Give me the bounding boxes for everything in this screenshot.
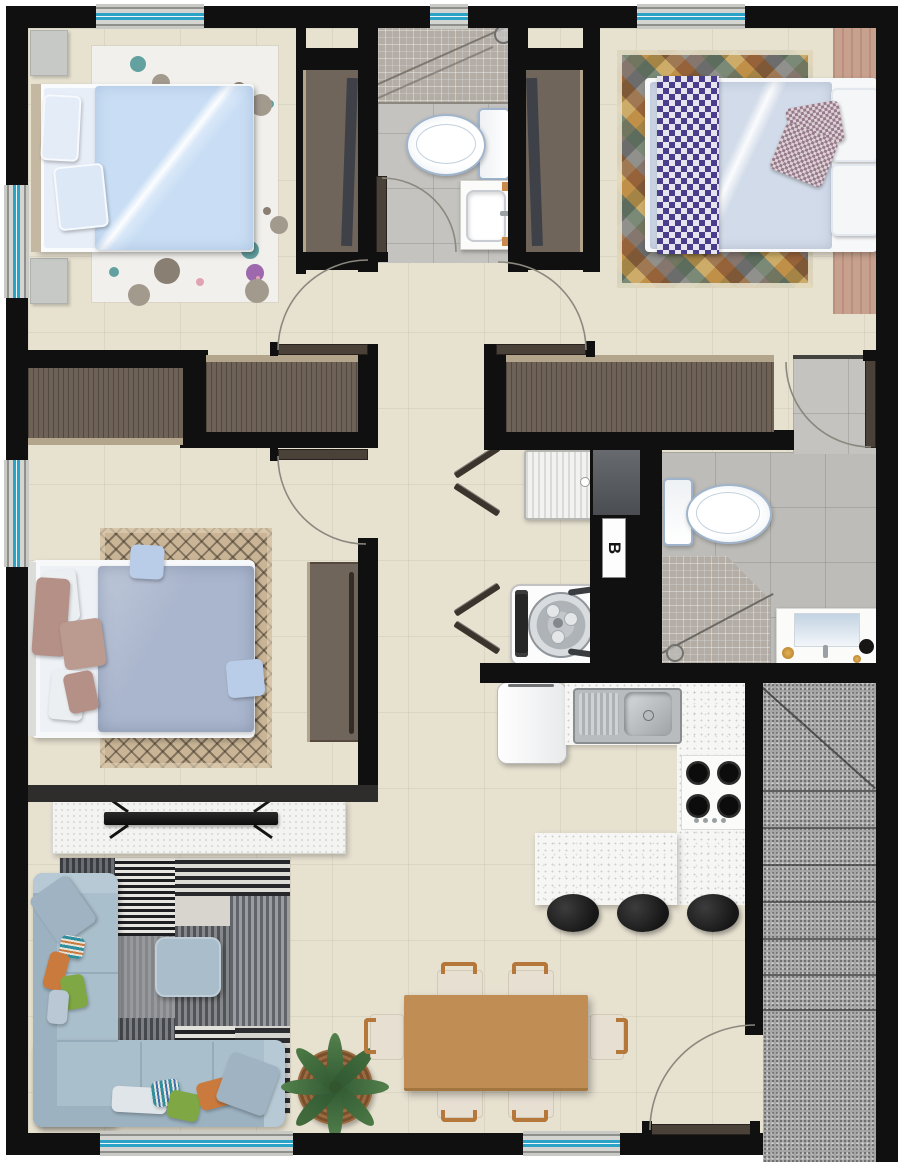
utility-shaft-tag: B <box>602 518 626 578</box>
window-bottom-living <box>100 1131 293 1156</box>
door-leaf-bedroom2 <box>278 449 368 460</box>
bedroom1-nightstand-bottom <box>30 258 68 304</box>
vanity-black-accent <box>859 639 874 654</box>
wall-top <box>468 6 637 28</box>
stove-knob <box>703 818 708 823</box>
bedroom3-bed-runner <box>657 76 719 254</box>
closet-bedroom3 <box>506 362 774 432</box>
stair-step <box>763 1009 876 1011</box>
washer-control-panel <box>515 590 528 657</box>
closet-bedroom1 <box>206 362 358 432</box>
closet-bedroom1-face <box>206 355 358 362</box>
bedroom2-wardrobe-handle <box>349 572 354 734</box>
stove-knob <box>712 818 717 823</box>
window-left-bedroom1 <box>4 185 29 298</box>
bedroom1-bed-headboard <box>31 84 41 252</box>
dining-chair-back <box>364 1018 376 1054</box>
door-hinge <box>270 342 278 356</box>
sofa-pillow-blue <box>47 989 70 1025</box>
window-top-bedroom1 <box>96 4 204 29</box>
rug-stripe-block <box>115 858 175 936</box>
door-hinge <box>642 1121 652 1137</box>
window-top-bathroom1 <box>430 4 468 29</box>
bedroom1-nightstand-top <box>30 30 68 76</box>
wardrobe-frame <box>303 48 358 72</box>
dining-chair-back <box>616 1018 628 1054</box>
rug-splatter <box>130 56 146 72</box>
window-top-bedroom3 <box>637 4 745 29</box>
door-leaf-bedroom1 <box>278 344 368 355</box>
bathroom2-vanity-faucet <box>823 645 828 658</box>
door-hinge <box>375 252 388 262</box>
stair-step <box>763 790 876 792</box>
dining-chair-back <box>441 962 477 974</box>
wardrobe-frame <box>526 250 583 270</box>
window-left-bedroom2 <box>4 460 29 567</box>
bedroom1-duvet <box>95 86 253 250</box>
door-leaf-entry <box>648 1124 756 1135</box>
wall-bottom <box>293 1133 523 1155</box>
wall-post-hall-left <box>358 344 378 448</box>
dining-chair-back <box>512 1110 548 1122</box>
bedroom2-throw-cushion <box>225 658 265 698</box>
bar-stool <box>617 894 669 932</box>
door-leaf-bedroom3 <box>496 344 586 355</box>
apartment-floor-plan: B <box>0 0 900 1162</box>
bedroom1-pillow <box>40 94 81 162</box>
stair-step <box>763 827 876 829</box>
bedroom1-pillow <box>53 163 109 232</box>
stair-step <box>763 864 876 866</box>
fridge-handle <box>508 684 554 687</box>
washer-paddle <box>551 630 565 644</box>
wall-left <box>6 298 28 460</box>
stair-step <box>763 938 876 940</box>
vanity-gold-accent <box>782 647 794 659</box>
stair-landing-diagonal <box>760 685 876 789</box>
bedroom3-pillow-white <box>831 164 879 236</box>
dining-chair-back <box>512 962 548 974</box>
toilet2-seat-line <box>696 492 760 534</box>
stove-burner <box>686 794 710 818</box>
fridge <box>497 682 567 764</box>
wardrobe-frame <box>526 48 583 72</box>
tv-console <box>52 800 346 854</box>
sofa-seam <box>57 1040 118 1042</box>
bathroom2-vestibule-floor <box>793 358 876 454</box>
wall-bedroom3-left <box>583 28 600 272</box>
sofa-seam <box>57 972 118 974</box>
bedroom2-pillow-mauve <box>59 617 107 670</box>
stair-step <box>763 901 876 903</box>
toilet1-seat-line <box>416 124 476 164</box>
closet-bedroom2-face <box>28 438 183 445</box>
wall-left <box>6 6 28 185</box>
door-leaf-bathroom1 <box>376 176 387 254</box>
rug-stripe-block <box>230 896 290 1026</box>
wall-top <box>745 6 894 28</box>
wall-kitchen-top <box>480 663 898 683</box>
bar-stool <box>687 894 739 932</box>
window-bottom-dining <box>523 1131 620 1156</box>
wall-closetB-bottom <box>180 430 358 448</box>
bedroom2-duvet <box>98 566 254 732</box>
rug-stripe-block <box>175 896 230 926</box>
bar-stool <box>547 894 599 932</box>
dining-chair-back <box>441 1110 477 1122</box>
stair-step <box>763 974 876 976</box>
utility-shaft-label: B <box>604 542 624 554</box>
washer-drum-cap <box>553 618 563 628</box>
utility-shaft-interior <box>593 443 640 515</box>
shower2-drain <box>666 644 684 662</box>
wall-bathroom1-right <box>508 6 528 272</box>
ottoman <box>155 937 221 997</box>
stove-burner <box>717 794 741 818</box>
wall-closetC-bottom <box>484 430 794 450</box>
door-leaf-bathroom2 <box>865 360 876 448</box>
door-hinge <box>586 341 595 357</box>
dining-table <box>404 995 588 1091</box>
wall-bathroom1-left <box>358 6 378 272</box>
stove-knob <box>721 818 726 823</box>
wall-living-divider <box>28 785 378 802</box>
bathroom1-vanity-basin <box>466 190 506 242</box>
wall-left <box>6 567 28 1155</box>
wall-closetA-top <box>6 350 208 368</box>
kitchen-island <box>535 833 677 905</box>
bathroom2-vanity-basin <box>794 613 860 647</box>
wall-kitchen-stairs-divider <box>745 683 763 1035</box>
rug-stripe-block <box>175 858 290 896</box>
bedroom2-throw-cushion <box>129 544 165 580</box>
stove-burner <box>686 761 710 785</box>
wall-right <box>876 6 898 1162</box>
closet-bedroom3-face <box>506 355 774 362</box>
sink-drainboard <box>579 693 619 735</box>
sink-drain <box>643 710 654 721</box>
potted-plant <box>290 1042 380 1132</box>
wall-bottom <box>6 1133 100 1155</box>
door-hinge <box>863 350 876 361</box>
water-heater-knob <box>580 477 590 487</box>
tv-screen <box>104 812 278 825</box>
stove-knob <box>694 818 699 823</box>
door-hinge <box>270 447 278 461</box>
closet-bedroom2 <box>28 368 183 440</box>
vanity-gold-accent-small <box>853 655 861 663</box>
door-hinge <box>750 1121 760 1137</box>
washer-paddle <box>546 604 560 618</box>
staircase <box>763 683 876 1162</box>
plant-center <box>329 1081 341 1093</box>
wardrobe-frame <box>303 250 358 270</box>
stove-burner <box>717 761 741 785</box>
wall-top <box>204 6 430 28</box>
washer-paddle <box>564 612 578 626</box>
wall-bedroom2-right <box>358 538 378 802</box>
